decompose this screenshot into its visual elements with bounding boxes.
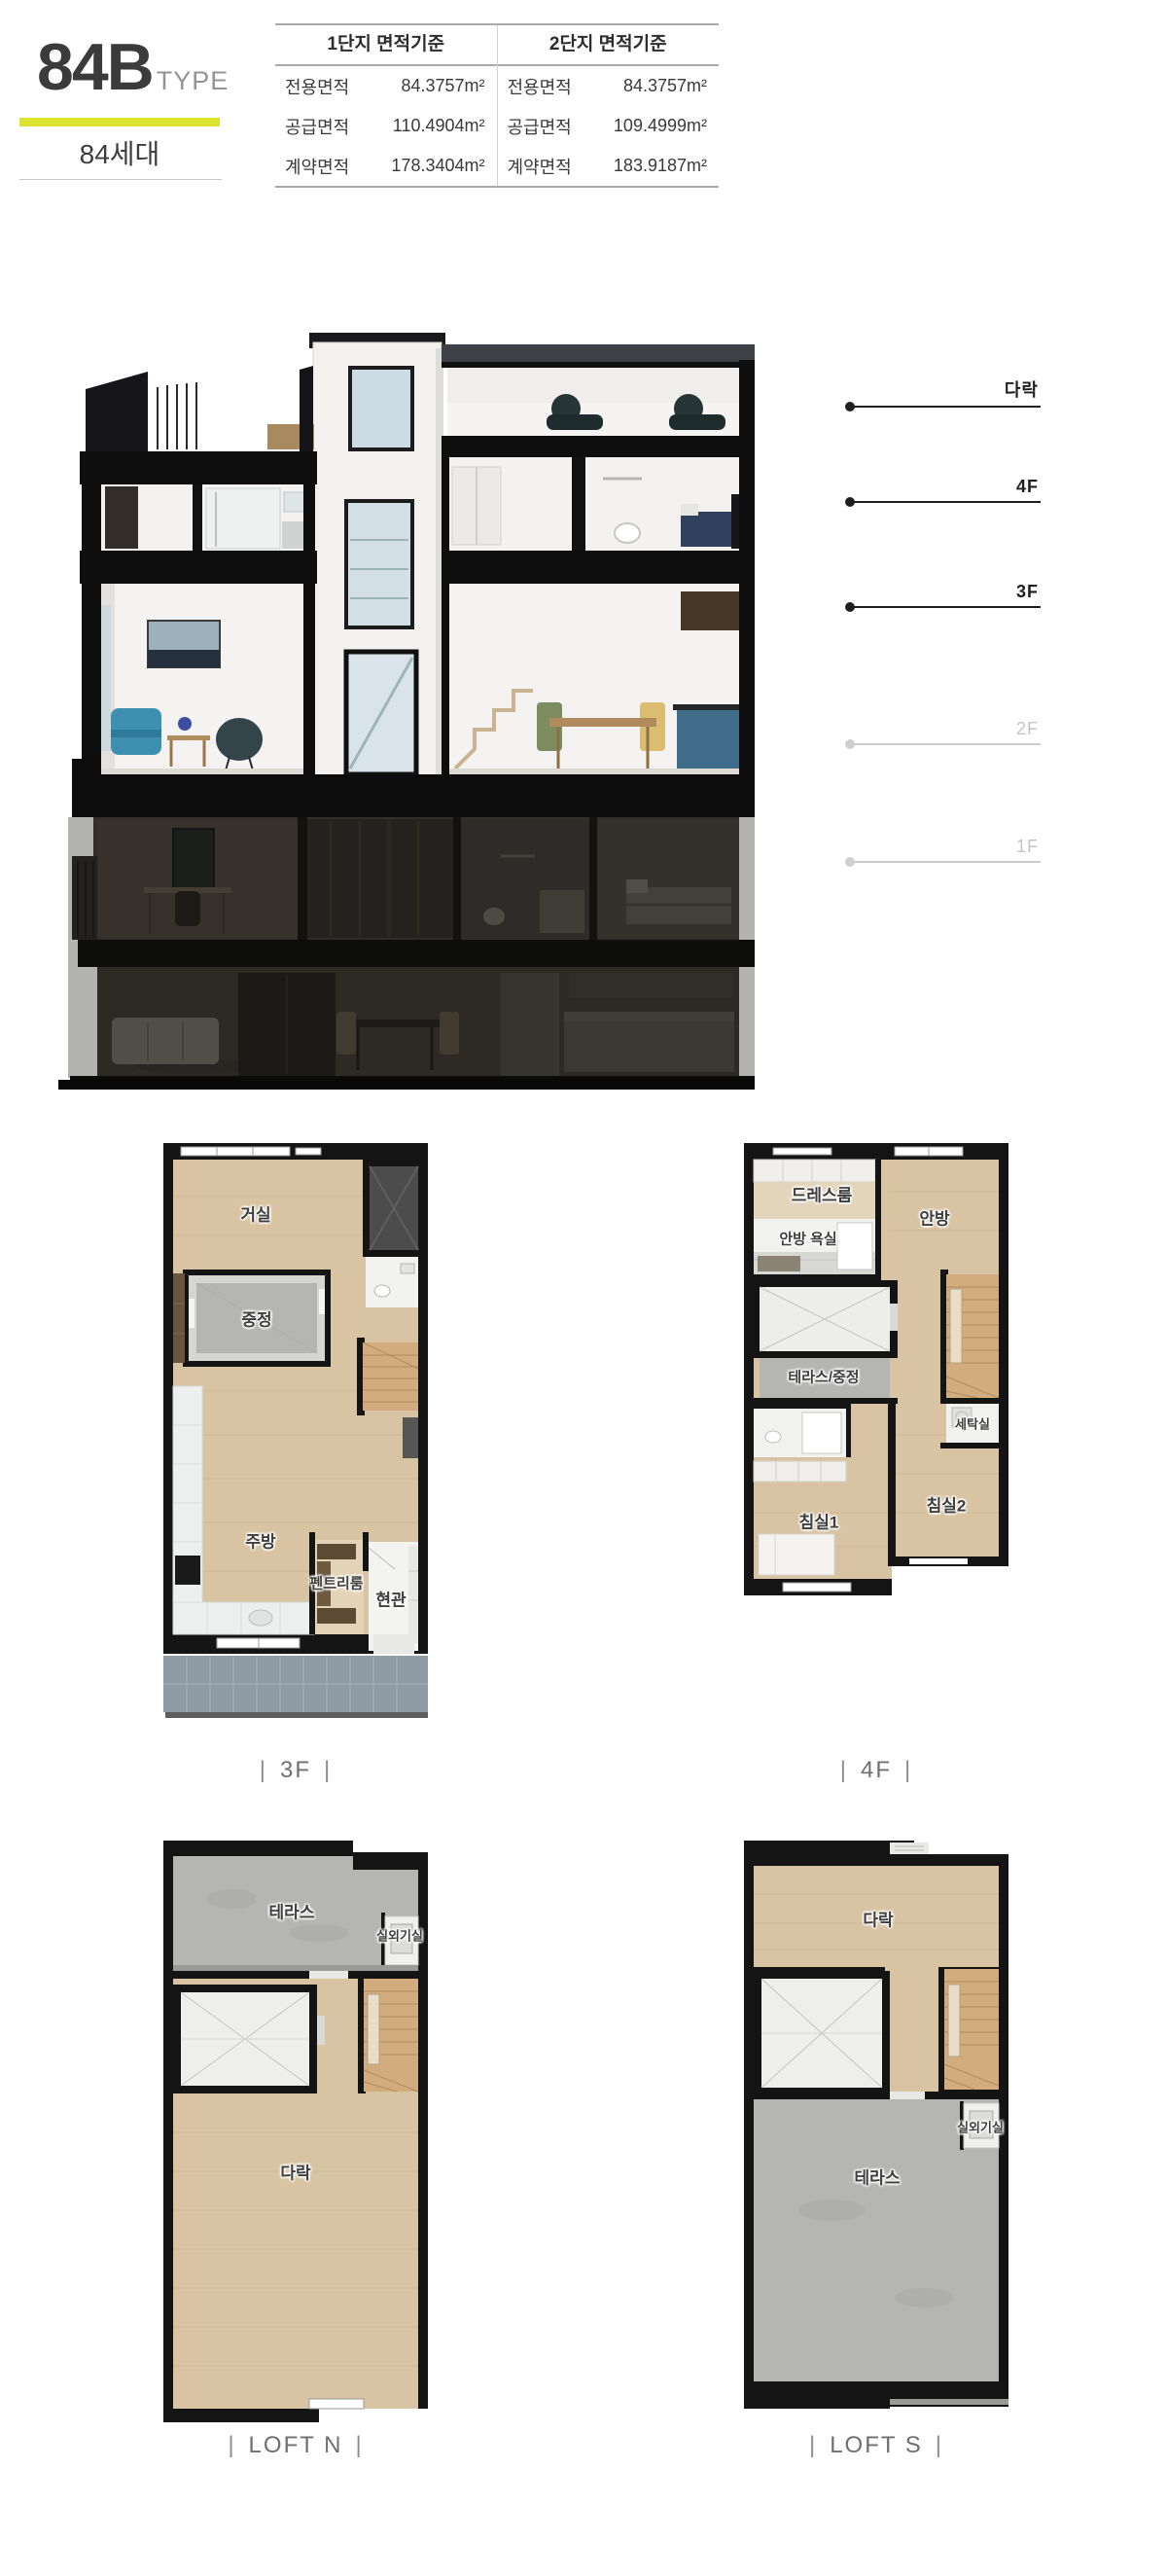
callout-line: [849, 606, 1041, 608]
caption-bar: |: [904, 1757, 912, 1783]
caption-bar: |: [840, 1757, 848, 1783]
plan-caption-3f: |3F|: [163, 1757, 428, 1784]
page: 84BTYPE 84세대 1단지 면적기준 전용면적 84.3757m² 공급면…: [0, 0, 1167, 2576]
caption-label: 4F: [861, 1757, 892, 1783]
floor-callout-loft: 다락: [849, 376, 1041, 408]
callout-dot: [845, 602, 855, 612]
table-row: 공급면적 109.4999m²: [498, 106, 720, 146]
floor-callout-label: 다락: [1005, 380, 1041, 400]
room-label-dressroom: 드레스룸: [792, 1182, 853, 1206]
table-row: 전용면적 84.3757m²: [275, 66, 497, 106]
room-label-ac: 실외기실: [957, 2118, 1004, 2136]
room-label-bed2: 침실2: [927, 1492, 967, 1517]
room-label-pantry: 펜트리룸: [309, 1573, 363, 1593]
building-base: [70, 1076, 755, 1090]
floor-plan-4f-svg: [744, 1143, 1008, 1600]
table-row: 계약면적 178.3404m²: [275, 146, 497, 186]
room-label-bed1: 침실1: [799, 1509, 839, 1533]
loft-terrace: [80, 366, 317, 484]
room-label-terrace: 테라스: [855, 2165, 901, 2189]
callout-line: [849, 861, 1041, 863]
floor-callout-4f: 4F: [849, 477, 1041, 503]
callout-dot: [845, 857, 855, 867]
table-row: 전용면적 84.3757m²: [498, 66, 720, 106]
room-label-living: 거실: [240, 1201, 270, 1226]
area-label: 공급면적: [285, 114, 349, 139]
type-suffix: TYPE: [157, 66, 230, 95]
floor-3f-kitchen: [449, 584, 739, 774]
unit-count: 84세대: [19, 133, 220, 172]
loft-room: [442, 344, 755, 457]
area-value: 84.3757m²: [623, 76, 707, 96]
area-table-header: 2단지 면적기준: [498, 25, 720, 66]
room-label-master: 안방: [919, 1205, 949, 1230]
slab-edge: [72, 759, 101, 817]
callout-dot: [845, 739, 855, 749]
area-value: 84.3757m²: [401, 76, 484, 96]
room-label-master-bath: 안방 욕실: [779, 1229, 836, 1249]
area-label: 계약면적: [285, 154, 349, 179]
floor-callout-2f: 2F: [849, 719, 1041, 745]
area-table-complex2: 2단지 면적기준 전용면적 84.3757m² 공급면적 109.4999m² …: [498, 25, 720, 186]
caption-bar: |: [228, 2432, 235, 2458]
type-code: 84B: [37, 30, 153, 104]
building-base-step: [58, 1080, 99, 1090]
floor-3f-living: [101, 584, 303, 774]
page-title: 84BTYPE: [37, 29, 229, 105]
area-value: 110.4904m²: [393, 116, 485, 136]
area-table: 1단지 면적기준 전용면적 84.3757m² 공급면적 110.4904m² …: [275, 23, 719, 188]
floor-callout-1f: 1F: [849, 837, 1041, 863]
floor-plan-3f-svg: [163, 1143, 428, 1724]
building-section-render: [58, 331, 759, 1090]
area-value: 109.4999m²: [614, 116, 707, 136]
caption-bar: |: [936, 2432, 943, 2458]
slab-3f: [72, 774, 755, 817]
plan-caption-4f: |4F|: [744, 1757, 1008, 1784]
caption-label: LOFT S: [830, 2432, 923, 2458]
room-label-entrance: 현관: [375, 1587, 406, 1611]
header-underline: [19, 179, 222, 180]
caption-bar: |: [355, 2432, 363, 2458]
floor-plan-loft-s: 다락 실외기실 테라스: [744, 1841, 1008, 2424]
area-label: 전용면적: [285, 74, 349, 99]
caption-bar: |: [324, 1757, 332, 1783]
room-label-laundry: 세탁실: [955, 1414, 990, 1433]
area-label: 계약면적: [508, 154, 572, 179]
room-label-terrace: 테라스: [269, 1899, 315, 1923]
floor-plan-3f: 거실 중정 주방 펜트리룸 현관: [163, 1143, 428, 1724]
callout-line: [849, 743, 1041, 745]
callout-line: [849, 501, 1041, 503]
dim-overlay: [68, 817, 755, 1078]
room-label-loft: 다락: [280, 2160, 310, 2184]
area-label: 공급면적: [508, 114, 572, 139]
floor-plan-4f: 드레스룸 안방 안방 욕실 테라스/중정 세탁실 침실1 침실2: [744, 1143, 1008, 1600]
room-label-loft: 다락: [863, 1907, 893, 1931]
area-value: 178.3404m²: [391, 156, 484, 176]
table-row: 계약면적 183.9187m²: [498, 146, 720, 186]
floor-callout-3f: 3F: [849, 582, 1041, 608]
caption-label: 3F: [280, 1757, 311, 1783]
callout-dot: [845, 402, 855, 411]
table-row: 공급면적 110.4904m²: [275, 106, 497, 146]
callout-line: [849, 406, 1041, 408]
area-value: 183.9187m²: [614, 156, 707, 176]
area-table-header: 1단지 면적기준: [275, 25, 497, 66]
area-label: 전용면적: [508, 74, 572, 99]
room-label-ac: 실외기실: [376, 1926, 423, 1945]
floor-callout-label: 3F: [1016, 582, 1041, 601]
room-label-terrace-court: 테라스/중정: [788, 1367, 859, 1387]
room-label-courtyard: 중정: [241, 1306, 271, 1331]
area-table-complex1: 1단지 면적기준 전용면적 84.3757m² 공급면적 110.4904m² …: [275, 25, 498, 186]
room-label-kitchen: 주방: [245, 1528, 275, 1553]
plan-caption-loft-n: |LOFT N|: [163, 2432, 428, 2459]
callout-dot: [845, 497, 855, 507]
caption-label: LOFT N: [249, 2432, 343, 2458]
stair-tower: [309, 333, 445, 778]
floor-callout-label: 1F: [1016, 837, 1041, 856]
caption-bar: |: [260, 1757, 267, 1783]
floor-callout-label: 2F: [1016, 719, 1041, 738]
caption-bar: |: [809, 2432, 817, 2458]
floor-callout-label: 4F: [1016, 477, 1041, 496]
floor-plan-loft-n: 테라스 실외기실 다락: [163, 1841, 428, 2424]
accent-bar: [19, 118, 220, 126]
plan-caption-loft-s: |LOFT S|: [744, 2432, 1008, 2459]
